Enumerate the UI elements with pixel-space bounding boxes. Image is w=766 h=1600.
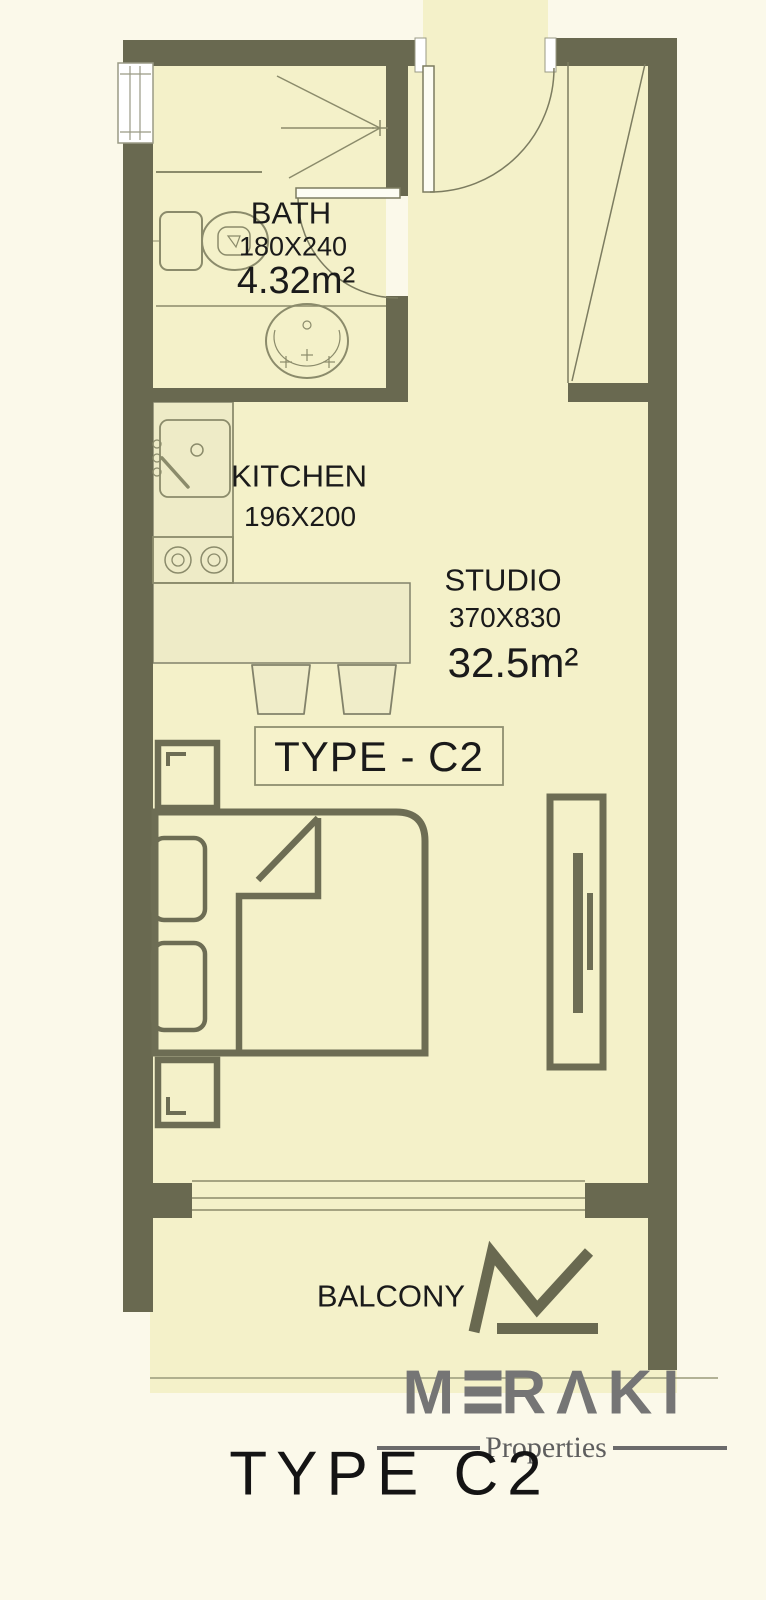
studio-area: 32.5m² (448, 642, 579, 684)
sliding-door-strip (192, 1183, 585, 1218)
bath-area: 4.32m² (237, 262, 355, 300)
kitchen-island (153, 583, 410, 663)
entry-threshold-floor (423, 0, 548, 66)
stool (338, 665, 396, 714)
nightstand-lower (158, 1060, 217, 1125)
wall-bath-right-lower (386, 296, 408, 402)
floorplan-page: BATH 180X240 4.32m² KITCHEN 196X200 STUD… (0, 0, 766, 1600)
studio-room-label: STUDIO (444, 565, 561, 596)
unit-type-box-label: TYPE - C2 (274, 736, 484, 778)
bath-window (118, 63, 153, 143)
wall-bath-right-upper (386, 62, 408, 196)
footer-unit-type: TYPE C2 (229, 1439, 550, 1510)
bath-room-label: BATH (251, 198, 331, 229)
studio-dimensions: 370X830 (449, 604, 561, 632)
kitchen-room-label: KITCHEN (231, 461, 367, 492)
entry-door-jamb-right (545, 38, 556, 72)
wall-shaft-bottom (568, 383, 648, 402)
wall-left (123, 40, 153, 1312)
wall-right (648, 38, 677, 1370)
stool (252, 665, 310, 714)
bed (153, 812, 425, 1053)
stylized-e (464, 1370, 501, 1413)
wall-sliding-left-stub (150, 1183, 192, 1218)
entry-door-leaf (423, 66, 434, 192)
wall-bath-kitchen (123, 388, 408, 402)
wardrobe (550, 797, 603, 1067)
wall-sliding-right-stub (585, 1183, 650, 1218)
kitchen-dimensions: 196X200 (244, 503, 356, 531)
wall-top-left (123, 40, 420, 66)
meraki-wordmark: MRΛKI (403, 1358, 690, 1429)
bath-dimensions: 180X240 (239, 234, 347, 261)
balcony-room-label: BALCONY (317, 1281, 465, 1312)
brand-rule-right (613, 1446, 727, 1450)
